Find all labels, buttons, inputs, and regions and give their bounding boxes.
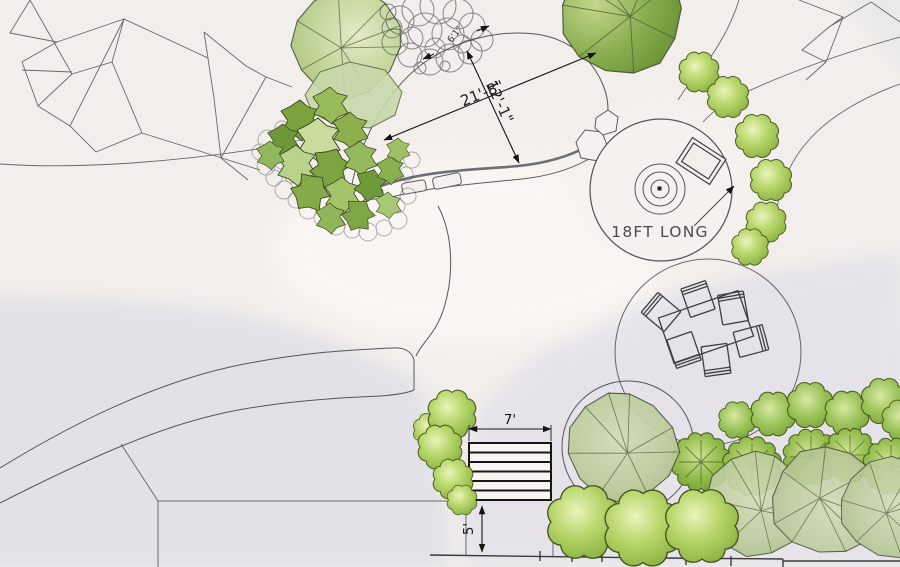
- step-tread: [469, 491, 551, 501]
- step-tread: [469, 472, 551, 482]
- landscape-plan-canvas: 21'-8" 12'-1" 6'1" 18FT LONG 7' 5': [0, 0, 900, 567]
- step-tread: [469, 462, 551, 472]
- step-tread: [469, 481, 551, 491]
- plan-drawing: 21'-8" 12'-1" 6'1" 18FT LONG 7' 5': [0, 0, 900, 567]
- step-treads: [469, 443, 551, 500]
- step-tread: [469, 443, 551, 453]
- fire-pit-center: [658, 187, 662, 191]
- step-tread: [469, 453, 551, 463]
- bottom-shrub-row: [548, 486, 739, 566]
- fire-pit: [635, 164, 685, 214]
- patio-length-callout: 18FT LONG: [611, 223, 708, 241]
- steps: [469, 443, 551, 500]
- steps-depth-dimension-label: 5': [461, 523, 477, 535]
- steps-width-dimension-label: 7': [504, 412, 516, 428]
